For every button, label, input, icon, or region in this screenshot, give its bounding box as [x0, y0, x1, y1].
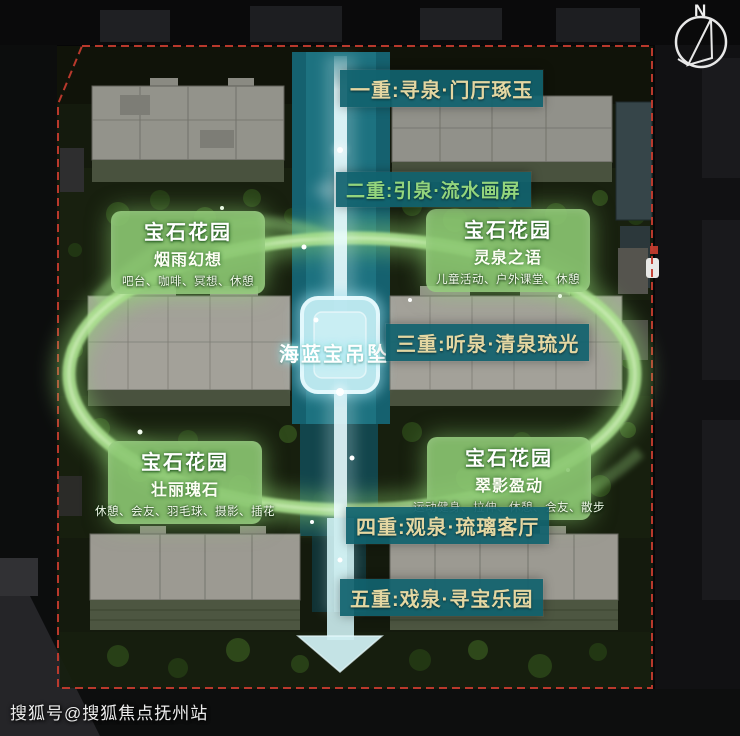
garden-label-top-right: 宝石花园 灵泉之语 儿童活动、户外课堂、休憩 — [426, 209, 590, 292]
garden-box: 宝石花园 烟雨幻想 吧台、咖啡、冥想、休憩 — [111, 211, 265, 294]
garden-features: 休憩、会友、羽毛球、摄影、插花 — [95, 503, 275, 519]
axis-label-level3: 三重:听泉·清泉琉光 — [386, 324, 589, 361]
garden-subtitle: 壮丽瑰石 — [151, 476, 219, 500]
garden-label-top-left: 宝石花园 烟雨幻想 吧台、咖啡、冥想、休憩 — [111, 211, 265, 294]
garden-box: 宝石花园 灵泉之语 儿童活动、户外课堂、休憩 — [426, 209, 590, 292]
axis-label-level4: 四重:观泉·琉璃客厅 — [346, 507, 549, 544]
site-plan-graphics: N — [0, 0, 740, 736]
garden-features: 儿童活动、户外课堂、休憩 — [436, 271, 580, 287]
axis-label-level1: 一重:寻泉·门厅琢玉 — [340, 70, 543, 107]
axis-label-level2: 二重:引泉·流水画屏 — [336, 172, 531, 207]
garden-features: 吧台、咖啡、冥想、休憩 — [122, 273, 254, 289]
watermark: 搜狐号@搜狐焦点抚州站 — [10, 699, 208, 724]
garden-subtitle: 烟雨幻想 — [154, 246, 222, 270]
axis-label-level5: 五重:戏泉·寻宝乐园 — [340, 579, 543, 616]
garden-label-bottom-left: 宝石花园 壮丽瑰石 休憩、会友、羽毛球、摄影、插花 — [108, 441, 262, 524]
garden-title: 宝石花园 — [144, 216, 232, 245]
garden-title: 宝石花园 — [464, 214, 552, 243]
garden-box: 宝石花园 壮丽瑰石 休憩、会友、羽毛球、摄影、插花 — [108, 441, 262, 524]
garden-title: 宝石花园 — [141, 446, 229, 475]
garden-subtitle: 灵泉之语 — [474, 244, 542, 268]
garden-subtitle: 翠影盈动 — [475, 472, 543, 496]
masterplan-image: N 一重:寻泉·门厅琢玉 二重:引泉·流水画屏 三重:听泉·清泉琉光 四重:观泉… — [0, 0, 740, 736]
pendant-label: 海蓝宝吊坠 — [279, 338, 389, 367]
garden-title: 宝石花园 — [465, 442, 553, 471]
